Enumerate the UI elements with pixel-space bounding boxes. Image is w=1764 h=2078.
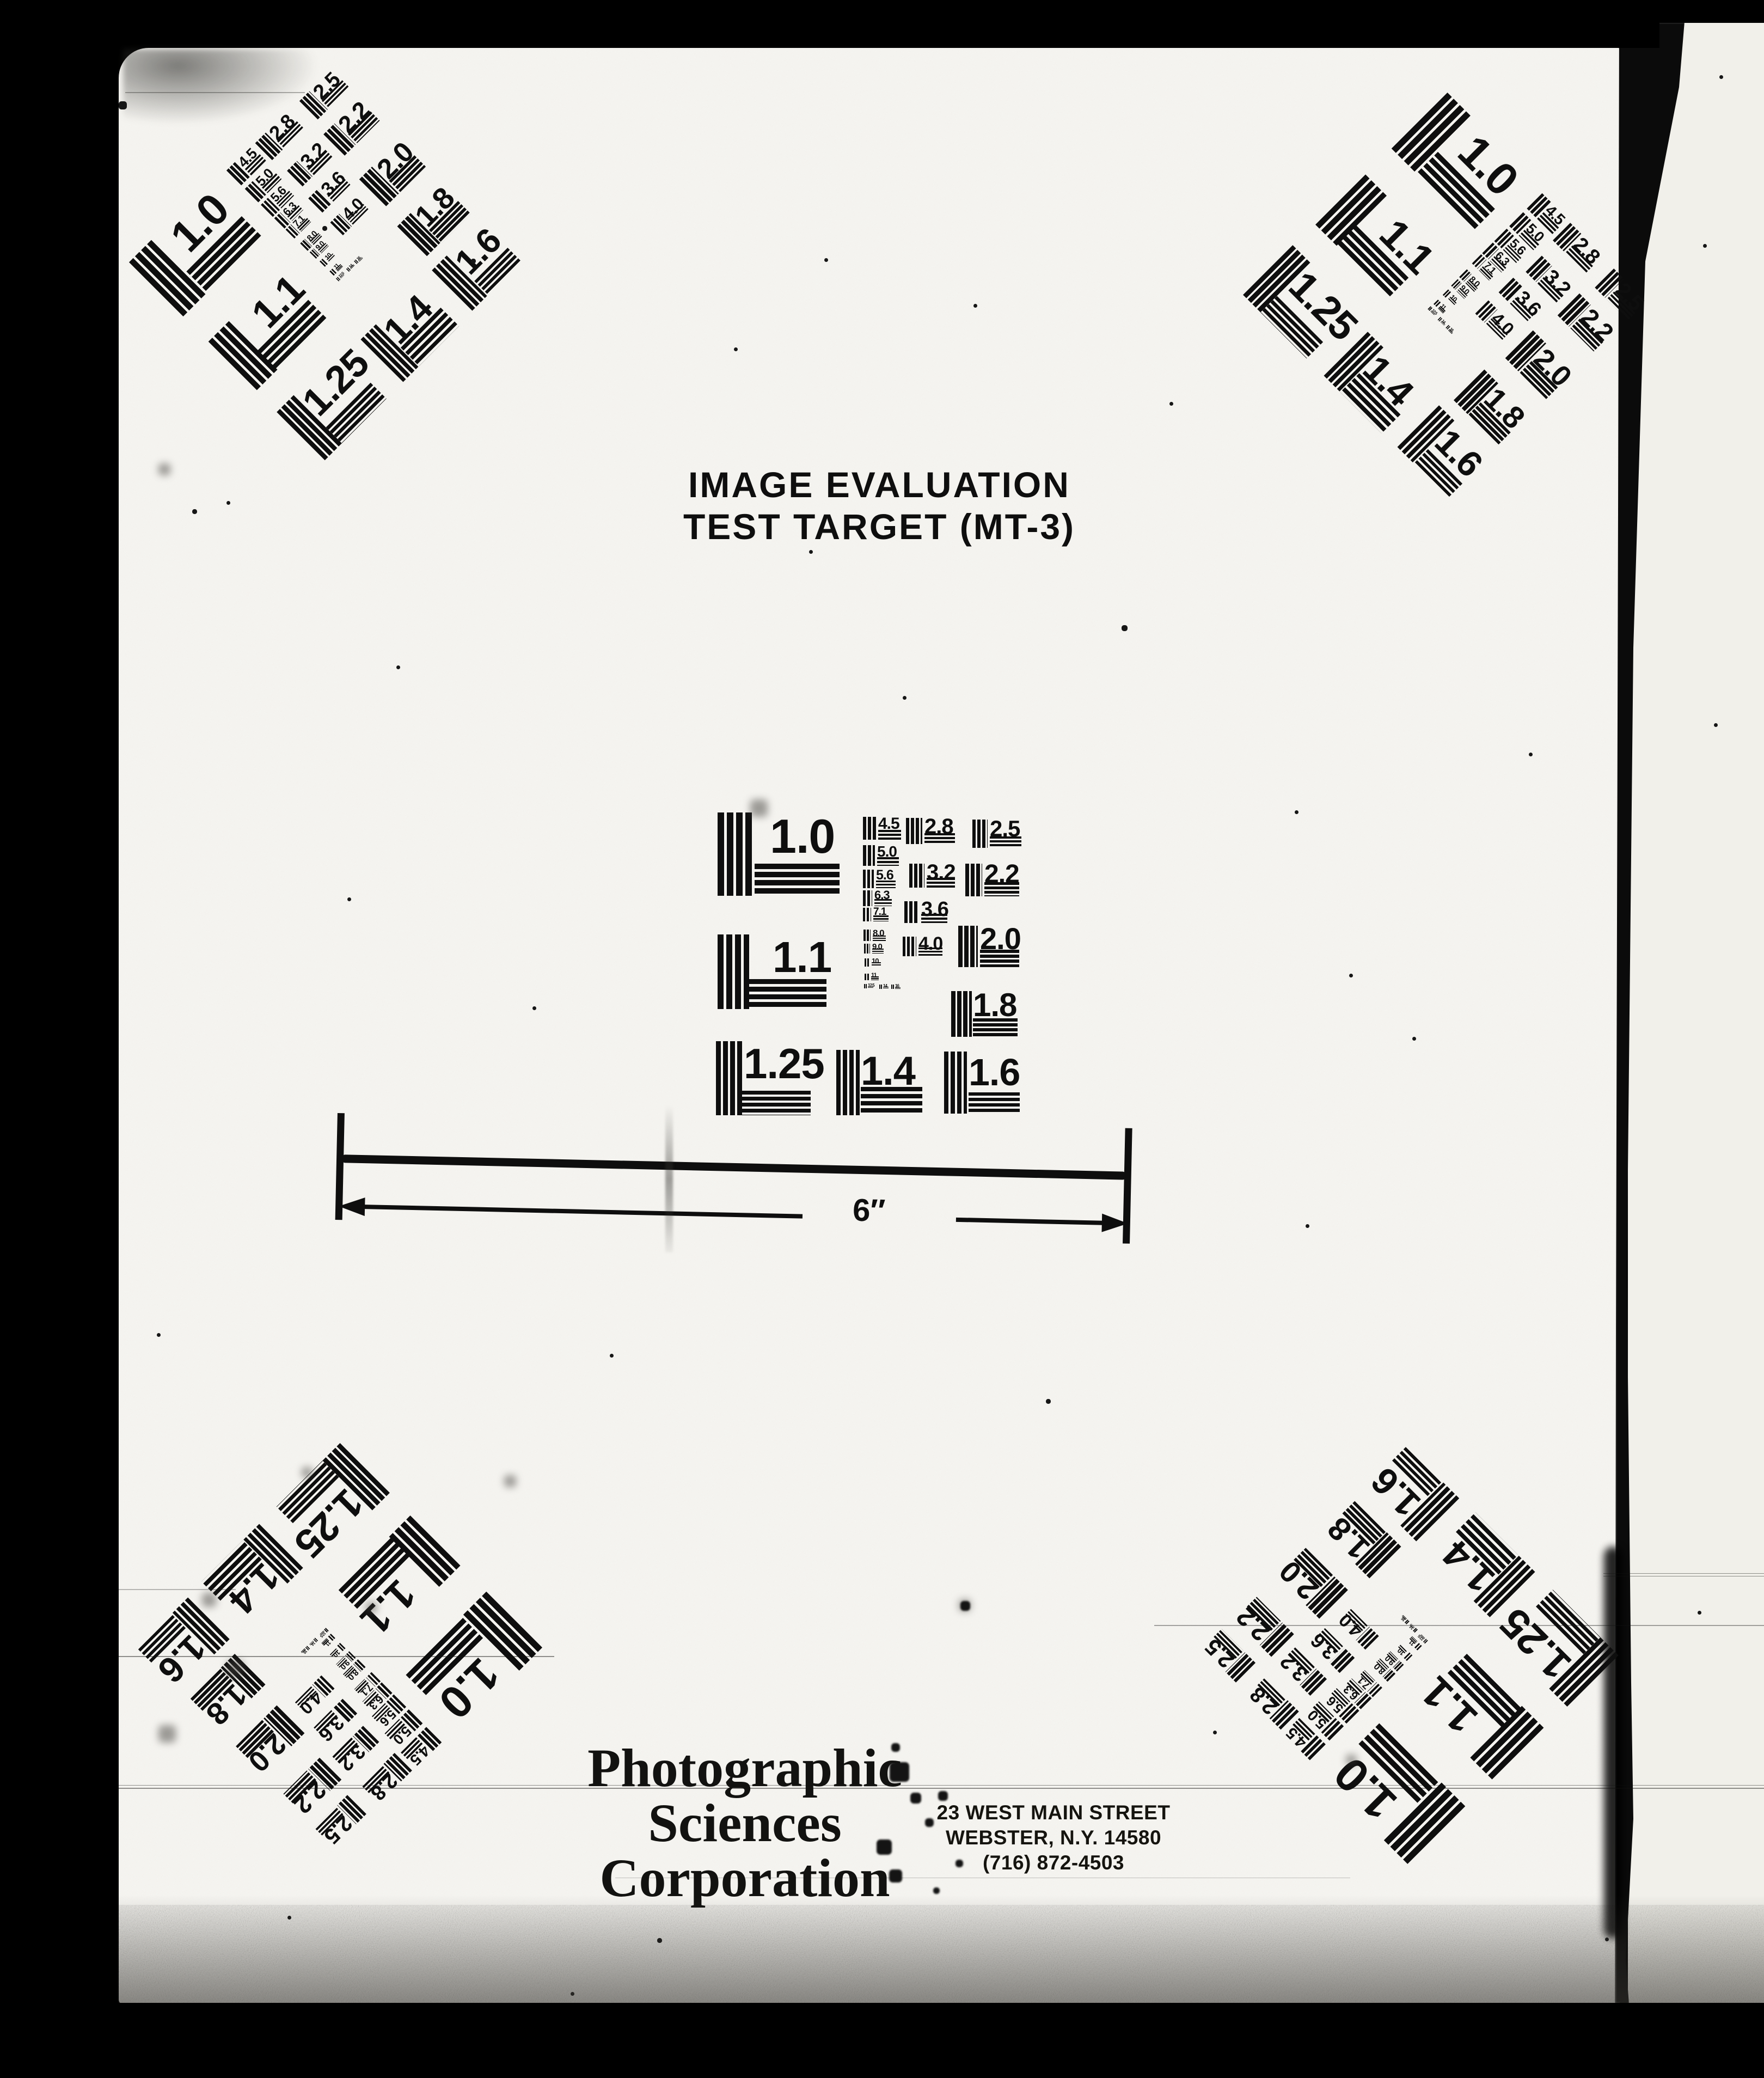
target-number: 5.0 [1523, 221, 1547, 245]
vertical-bars [261, 198, 280, 217]
horizontal-bars [1258, 1678, 1287, 1707]
horizontal-bars [1293, 1718, 1315, 1741]
horizontal-bars [332, 1738, 358, 1763]
target-number: 8.0 [873, 928, 884, 938]
horizontal-bars [921, 914, 947, 923]
horizontal-bars [1537, 212, 1559, 234]
horizontal-bars [1486, 318, 1508, 340]
horizontal-bars [277, 121, 304, 148]
vertical-bars [1494, 229, 1514, 248]
vertical-bars [1270, 1700, 1299, 1729]
horizontal-bars [1465, 279, 1478, 292]
gutter-shadow-blob [1604, 1547, 1622, 1939]
horizontal-bars [1416, 152, 1494, 230]
target-number: 1.8 [1322, 1512, 1375, 1564]
target-number: 3.6 [1512, 288, 1544, 320]
target-element-4.5: 4.5 [716, 811, 1024, 1124]
horizontal-bars [245, 154, 266, 175]
target-element-8.0: 8.0 [716, 811, 1024, 1124]
vertical-bars [354, 259, 358, 264]
vertical-bars [718, 812, 752, 896]
publisher-address: 23 WEST MAIN STREET WEBSTER, N.Y. 14580 … [926, 1800, 1181, 1875]
test-target-center: 1.01.11.251.41.64.55.05.66.37.18.09.0101… [716, 811, 1024, 1124]
vertical-bars [864, 944, 870, 954]
vertical-bars [432, 255, 487, 310]
target-number: 4.0 [297, 1688, 326, 1717]
scale-length-label: 6″ [823, 1191, 916, 1230]
vertical-bars [904, 901, 919, 923]
horizontal-bars [1519, 230, 1540, 250]
target-number: 6.3 [1342, 1683, 1360, 1702]
target-element-5.0: 5.0 [716, 811, 1024, 1124]
vertical-bars [330, 213, 352, 235]
target-number: 5.6 [377, 1707, 398, 1728]
horizontal-bars [322, 80, 350, 108]
vertical-bars [314, 1637, 318, 1642]
target-number: 16 [1449, 327, 1454, 333]
vertical-bars [313, 1676, 335, 1698]
scan-border-left [0, 0, 119, 2078]
adjacent-page-strip [1628, 22, 1764, 2004]
vertical-bars [1482, 242, 1499, 259]
horizontal-bars [990, 836, 1021, 848]
target-number: 2.0 [980, 924, 1021, 954]
horizontal-bars [1520, 361, 1558, 399]
vertical-bars [287, 161, 313, 187]
vertical-bars [173, 1598, 230, 1655]
vertical-bars [863, 845, 875, 866]
target-number: 10 [323, 252, 333, 261]
horizontal-bars [1490, 256, 1506, 272]
horizontal-bars [1331, 1688, 1350, 1707]
vertical-bars [359, 167, 399, 206]
horizontal-bars [1336, 224, 1408, 297]
target-number: 11 [871, 973, 877, 979]
target-number: 2.2 [289, 1776, 330, 1817]
target-number: 11 [1408, 1639, 1416, 1647]
title-line-1: IMAGE EVALUATION [659, 464, 1100, 506]
target-number: 1.4 [377, 289, 439, 350]
scratch-line [615, 1878, 1350, 1878]
horizontal-bars [320, 1630, 324, 1635]
vertical-bars [299, 91, 328, 119]
vertical-bars [264, 1706, 304, 1746]
horizontal-bars [186, 216, 262, 292]
scan-border-top [0, 0, 1659, 48]
target-number: 5.0 [877, 844, 897, 859]
target-number: 3.2 [927, 861, 955, 883]
target-number: 12.5 [868, 983, 874, 988]
horizontal-bars [1448, 1652, 1523, 1728]
vertical-bars [337, 1795, 366, 1824]
target-number: 6.3 [1493, 249, 1511, 267]
vertical-bars [383, 1753, 412, 1781]
horizontal-bars [973, 1018, 1018, 1038]
target-element-4.0: 4.0 [716, 811, 1024, 1124]
vertical-bars [865, 974, 869, 980]
target-number: 8.0 [1467, 274, 1481, 288]
vertical-bars [1437, 317, 1442, 322]
horizontal-bars [1448, 329, 1453, 334]
target-number: 8.0 [1373, 1662, 1387, 1676]
target-number: 12.5 [1431, 308, 1438, 315]
target-number: 3.6 [318, 168, 349, 199]
vertical-bars [1499, 278, 1523, 302]
vertical-bars [1300, 1668, 1327, 1696]
target-number: 11 [324, 1639, 332, 1647]
vertical-bars [323, 124, 356, 156]
target-number: 7.1 [1482, 260, 1497, 276]
target-element-7.1: 7.1 [716, 811, 1024, 1124]
horizontal-bars [1448, 297, 1457, 306]
target-number: 3.2 [1540, 266, 1574, 300]
vertical-bars [1445, 325, 1450, 330]
horizontal-bars [1440, 321, 1445, 326]
target-number: 3.2 [1277, 1650, 1312, 1685]
vertical-bars [255, 132, 283, 160]
vertical-bars [226, 162, 250, 185]
target-number: 7.1 [873, 907, 886, 917]
target-number: 4.0 [339, 195, 367, 223]
scan-border-bottom [0, 2003, 1764, 2078]
target-element-1.8: 1.8 [716, 811, 1024, 1124]
target-number: 1.8 [973, 989, 1016, 1022]
target-number: 1.1 [245, 268, 311, 335]
vertical-bars [376, 1682, 393, 1699]
vertical-bars [418, 1727, 442, 1751]
vertical-bars [353, 1659, 366, 1672]
horizontal-bars [1510, 297, 1534, 321]
vertical-bars [958, 926, 978, 967]
horizontal-bars [309, 1640, 314, 1645]
vertical-bars [1423, 1639, 1428, 1643]
vertical-bars [865, 958, 869, 967]
vertical-bars [879, 985, 882, 989]
six-inch-scale: 6″ [335, 1111, 1132, 1259]
target-number: 8.0 [305, 229, 318, 242]
publisher-name: Photographic Sciences Corporation [554, 1740, 935, 1905]
target-element-10: 10 [716, 811, 1024, 1124]
horizontal-bars [1345, 1609, 1368, 1631]
horizontal-bars [1438, 306, 1445, 314]
target-element-14: 14 [716, 811, 1024, 1124]
target-number: 7.1 [1356, 1675, 1372, 1691]
vertical-bars [401, 1709, 422, 1731]
target-element-2.5: 2.5 [716, 811, 1024, 1124]
target-element-2.0: 2.0 [716, 811, 1024, 1124]
scratch-line [125, 92, 305, 93]
target-number: 7.1 [292, 214, 307, 229]
target-number: 2.5 [990, 817, 1020, 840]
target-element-1.0: 1.0 [716, 811, 1024, 1124]
horizontal-bars [1319, 1628, 1343, 1653]
horizontal-bars [372, 1703, 390, 1722]
horizontal-bars [1342, 1500, 1387, 1544]
vertical-bars [1527, 193, 1551, 217]
bottom-exposure-fade [119, 1895, 1764, 2004]
publisher-line-1: Photographic [554, 1740, 935, 1795]
vertical-bars [1405, 1619, 1410, 1624]
target-number: 10 [872, 957, 878, 964]
vertical-bars [1451, 279, 1461, 290]
vertical-bars [965, 864, 982, 896]
target-number: 2.2 [1233, 1603, 1275, 1645]
vertical-bars [891, 985, 894, 989]
vertical-bars [1324, 332, 1383, 391]
target-number: 5.6 [268, 185, 289, 205]
vertical-bars [718, 934, 749, 1009]
horizontal-bars [984, 882, 1019, 896]
vertical-bars [863, 870, 874, 888]
horizontal-bars [1430, 310, 1435, 315]
horizontal-bars [189, 1667, 232, 1710]
vertical-bars [1339, 1703, 1359, 1723]
horizontal-bars [748, 979, 826, 1009]
target-number: 1.25 [1493, 1602, 1578, 1686]
target-element-2.8: 2.8 [716, 811, 1024, 1124]
horizontal-bars [283, 1770, 316, 1803]
vertical-bars [328, 1634, 335, 1641]
horizontal-bars [385, 1719, 406, 1740]
horizontal-bars [327, 253, 335, 262]
target-number: 9.0 [872, 943, 882, 951]
target-number: 7.1 [359, 1682, 374, 1697]
arrowhead-right-icon [1101, 1214, 1128, 1233]
vertical-bars [1474, 1556, 1535, 1617]
horizontal-bars [876, 881, 896, 888]
horizontal-bars [742, 1091, 811, 1115]
target-number: 3.6 [315, 1712, 347, 1744]
scan-border-top-right [1659, 0, 1764, 23]
vertical-bars [1400, 1482, 1459, 1541]
scale-bar [342, 1154, 1126, 1179]
target-number: 10 [1449, 294, 1458, 303]
target-number: 5.6 [1325, 1694, 1346, 1715]
horizontal-bars [861, 1087, 922, 1115]
target-number: 1.0 [770, 812, 835, 860]
target-number: 8.0 [346, 1667, 360, 1681]
horizontal-bars [1570, 319, 1603, 351]
vertical-bars [1553, 223, 1581, 251]
vertical-bars [1355, 1532, 1401, 1579]
horizontal-bars [429, 201, 471, 243]
vertical-bars [1260, 1623, 1294, 1657]
vertical-bars [1526, 256, 1552, 282]
target-element-11: 11 [716, 811, 1024, 1124]
horizontal-bars [262, 173, 281, 193]
horizontal-bars [755, 864, 840, 896]
vertical-bars [1434, 300, 1441, 307]
horizontal-bars [1565, 246, 1593, 273]
horizontal-bars [295, 1686, 316, 1708]
horizontal-bars [1214, 1629, 1244, 1659]
horizontal-bars [1479, 266, 1493, 280]
target-number: 5.0 [1306, 1707, 1330, 1731]
vertical-smear [665, 1105, 673, 1252]
target-number: 11 [1439, 303, 1447, 311]
vertical-bars [337, 1643, 346, 1652]
horizontal-bars [389, 155, 426, 192]
vertical-bars [308, 1758, 341, 1791]
horizontal-bars [348, 111, 380, 143]
vertical-bars [716, 1041, 742, 1115]
vertical-bars [1413, 1628, 1418, 1633]
horizontal-bars [327, 179, 350, 201]
vertical-bars [285, 224, 299, 239]
horizontal-bars [310, 233, 322, 245]
scratch-line [1603, 1576, 1764, 1576]
vertical-bars [324, 1628, 329, 1633]
horizontal-bars [362, 1765, 389, 1793]
target-number: 6.3 [367, 1693, 385, 1711]
arrowhead-left-icon [339, 1197, 365, 1216]
horizontal-bars [318, 243, 329, 254]
vertical-bars [346, 267, 351, 272]
target-number: 2.2 [1576, 305, 1617, 346]
vertical-bars [360, 324, 418, 382]
horizontal-bars [336, 1657, 347, 1667]
vertical-bars [944, 1052, 967, 1114]
publisher-line-2: Sciences [554, 1795, 935, 1850]
horizontal-bars [1288, 1647, 1315, 1674]
vertical-bars [972, 820, 988, 848]
target-element-1.4: 1.4 [716, 811, 1024, 1124]
target-number: 3.6 [921, 899, 948, 920]
address-line-3: (716) 872-4503 [926, 1850, 1181, 1875]
horizontal-bars [877, 857, 899, 866]
target-number: 9.0 [1384, 1654, 1396, 1667]
horizontal-bars [969, 1092, 1020, 1114]
vertical-bars [221, 1654, 266, 1698]
horizontal-bars [1410, 1636, 1418, 1644]
vertical-bars [353, 1726, 379, 1752]
ink-splatter [0, 0, 2, 2]
address-line-1: 23 WEST MAIN STREET [926, 1800, 1181, 1825]
horizontal-bars [873, 915, 889, 921]
target-number: 16 [1401, 1617, 1406, 1622]
target-number: 1.25 [288, 1482, 371, 1565]
vertical-bars [320, 258, 328, 267]
target-number: 1.1 [1414, 1670, 1485, 1740]
vertical-bars [836, 1050, 860, 1115]
target-number: 10 [1396, 1647, 1406, 1657]
vertical-bars [1595, 268, 1624, 298]
horizontal-bars [868, 986, 873, 988]
target-element-1.1: 1.1 [716, 811, 1024, 1124]
horizontal-bars [924, 833, 955, 844]
vertical-bars [1404, 1652, 1413, 1661]
horizontal-bars [236, 1720, 274, 1758]
horizontal-bars [1420, 1634, 1425, 1640]
target-number: 9.0 [1459, 284, 1471, 296]
vertical-bars [863, 890, 872, 906]
vertical-bars [329, 268, 336, 276]
target-number: 5.0 [253, 166, 276, 189]
horizontal-bars [297, 218, 311, 231]
target-number: 1.8 [201, 1679, 252, 1730]
horizontal-bars [329, 1648, 338, 1657]
target-element-1.25: 1.25 [716, 811, 1024, 1124]
horizontal-bars [980, 950, 1019, 967]
horizontal-bars [883, 987, 889, 989]
target-number: 12.5 [320, 1631, 327, 1638]
horizontal-bars [872, 949, 884, 954]
horizontal-bars [878, 830, 901, 840]
horizontal-bars [315, 1807, 344, 1836]
target-number: 5.6 [1507, 237, 1528, 258]
target-number: 4.0 [918, 934, 942, 953]
scratch-line [119, 1788, 1764, 1789]
vertical-bars [863, 930, 871, 941]
target-number: 5.0 [390, 1723, 414, 1747]
target-element-3.6: 3.6 [716, 811, 1024, 1124]
target-number: 14 [348, 264, 354, 269]
vertical-bars [1454, 369, 1498, 414]
horizontal-bars [287, 205, 303, 221]
vertical-bars [310, 248, 320, 259]
horizontal-bars [363, 1690, 379, 1706]
horizontal-bars [257, 300, 328, 371]
horizontal-bars [871, 976, 879, 980]
horizontal-bars [873, 936, 886, 941]
vertical-bars [1356, 1627, 1379, 1649]
target-number: 2.2 [334, 98, 374, 138]
vertical-bars [336, 277, 340, 281]
vertical-bars [274, 212, 291, 229]
horizontal-bars [321, 1638, 329, 1646]
horizontal-bars [277, 191, 295, 209]
horizontal-bars [335, 264, 343, 272]
vertical-bars [1355, 1692, 1372, 1709]
vertical-bars [864, 984, 867, 988]
vertical-bars [1472, 254, 1487, 269]
target-number: 16 [356, 256, 362, 261]
vertical-bars [1330, 1648, 1355, 1673]
vertical-bars [1226, 1652, 1255, 1682]
vertical-bars [333, 1699, 357, 1723]
vertical-bars [245, 181, 266, 203]
horizontal-bars [314, 1710, 338, 1734]
target-element-5.6: 5.6 [716, 811, 1024, 1124]
horizontal-bars [308, 150, 333, 175]
target-number: 1.8 [1479, 383, 1530, 434]
vertical-bars [1301, 1735, 1326, 1761]
page-title: IMAGE EVALUATION TEST TARGET (MT-3) [659, 464, 1100, 548]
scratch-line [1603, 1573, 1764, 1574]
vertical-bars [1367, 1682, 1382, 1697]
target-element-9.0: 9.0 [716, 811, 1024, 1124]
target-number: 3.2 [335, 1740, 369, 1774]
target-element-3.2: 3.2 [716, 811, 1024, 1124]
vertical-bars [1443, 289, 1451, 298]
vertical-bars [903, 937, 916, 956]
vertical-bars [1459, 269, 1472, 282]
horizontal-bars [918, 948, 942, 956]
target-element-6.3: 6.3 [716, 811, 1024, 1124]
arrow-line-left [360, 1205, 803, 1219]
horizontal-bars [927, 878, 955, 888]
horizontal-bars [872, 962, 881, 967]
horizontal-bars [1294, 1548, 1333, 1587]
target-number: 1.25 [296, 343, 376, 423]
target-number: 12.5 [1418, 1634, 1425, 1642]
target-number: 4.5 [878, 816, 899, 832]
vertical-bars [1428, 306, 1432, 311]
target-element-12.5: 12.5 [716, 811, 1024, 1124]
vertical-bars [909, 864, 924, 888]
target-number: 1.25 [744, 1042, 824, 1085]
horizontal-bars [1361, 1670, 1375, 1685]
